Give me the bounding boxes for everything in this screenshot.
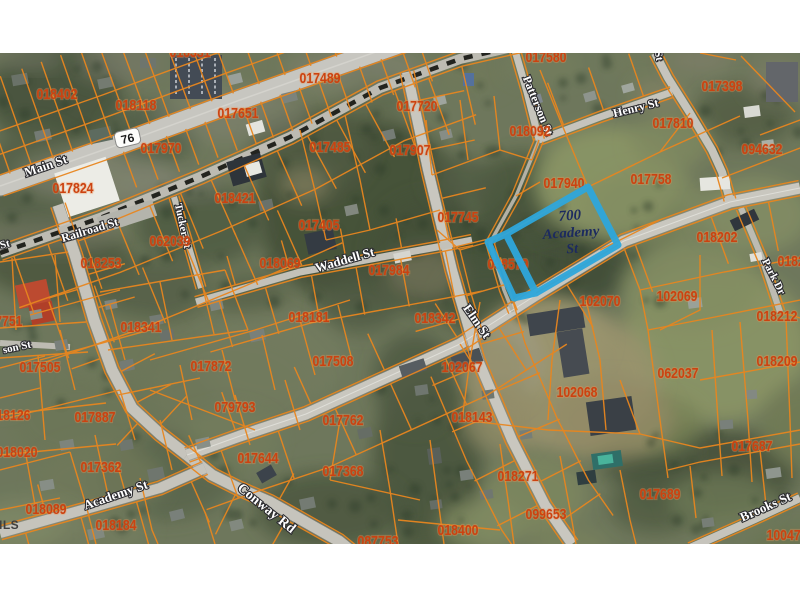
svg-text:017508: 017508 — [313, 353, 354, 370]
svg-text:018118: 018118 — [116, 97, 157, 114]
svg-text:017810: 017810 — [653, 115, 694, 132]
svg-text:017368: 017368 — [323, 463, 364, 480]
svg-text:017644: 017644 — [238, 450, 280, 467]
svg-text:017751: 017751 — [0, 313, 23, 330]
svg-text:062039: 062039 — [150, 233, 191, 250]
svg-text:018069: 018069 — [260, 255, 301, 272]
svg-text:700: 700 — [558, 207, 582, 225]
svg-text:017489: 017489 — [300, 70, 341, 87]
svg-text:062037: 062037 — [658, 365, 699, 382]
svg-text:018092: 018092 — [510, 123, 551, 140]
svg-text:018143: 018143 — [452, 409, 493, 426]
svg-text:102067: 102067 — [442, 359, 483, 376]
svg-text:018202: 018202 — [697, 229, 738, 246]
svg-text:017720: 017720 — [397, 98, 438, 115]
svg-text:017984: 017984 — [369, 262, 411, 279]
svg-text:017758: 017758 — [631, 171, 672, 188]
svg-text:099653: 099653 — [526, 506, 567, 523]
svg-text:017398: 017398 — [702, 78, 743, 95]
svg-text:017689: 017689 — [640, 486, 681, 503]
svg-text:018020: 018020 — [0, 444, 38, 461]
svg-text:St: St — [566, 241, 580, 257]
svg-text:017651: 017651 — [218, 105, 259, 122]
svg-text:018342: 018342 — [415, 310, 456, 327]
svg-text:017745: 017745 — [438, 209, 479, 226]
svg-text:017405: 017405 — [299, 217, 340, 234]
svg-text:017687: 017687 — [732, 438, 773, 455]
svg-text:018253: 018253 — [81, 255, 122, 272]
svg-text:018421: 018421 — [215, 190, 256, 207]
svg-text:017505: 017505 — [20, 359, 61, 376]
svg-text:100478: 100478 — [767, 527, 800, 544]
svg-text:ILS: ILS — [0, 518, 19, 532]
svg-text:017872: 017872 — [191, 358, 232, 375]
svg-text:018212: 018212 — [757, 308, 798, 325]
svg-text:018341: 018341 — [121, 319, 162, 336]
svg-text:018250: 018250 — [778, 253, 800, 270]
svg-text:018400: 018400 — [438, 522, 479, 539]
svg-text:018181: 018181 — [289, 309, 330, 326]
svg-text:102068: 102068 — [557, 384, 598, 401]
svg-text:017362: 017362 — [81, 459, 122, 476]
svg-text:018402: 018402 — [37, 86, 78, 103]
svg-text:102069: 102069 — [657, 288, 698, 305]
svg-text:018271: 018271 — [498, 468, 539, 485]
svg-text:017907: 017907 — [390, 142, 431, 159]
svg-text:017762: 017762 — [323, 412, 364, 429]
svg-text:094632: 094632 — [742, 141, 783, 158]
svg-text:017485: 017485 — [310, 139, 351, 156]
svg-text:018126: 018126 — [0, 407, 31, 424]
svg-text:017970: 017970 — [141, 140, 182, 157]
svg-text:102070: 102070 — [580, 293, 621, 310]
svg-text:018089: 018089 — [26, 501, 67, 518]
svg-text:017824: 017824 — [53, 180, 95, 197]
svg-text:018209: 018209 — [757, 353, 798, 370]
svg-text:018184: 018184 — [96, 517, 138, 534]
svg-text:079793: 079793 — [215, 399, 256, 416]
svg-text:017887: 017887 — [75, 409, 116, 426]
